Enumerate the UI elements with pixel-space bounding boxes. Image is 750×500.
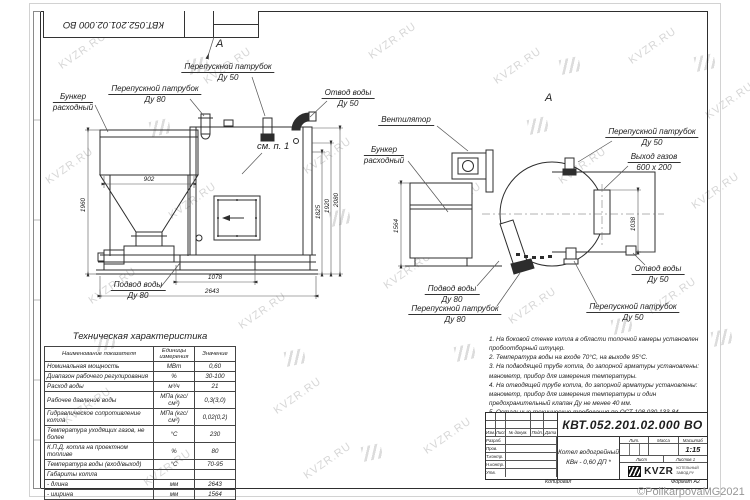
callout-side-water-outlet: Отвод воды Ду 50 xyxy=(632,264,685,285)
callout-side-water-inlet: Подвод воды Ду 80 xyxy=(425,284,480,305)
title-block-right-section: КВТ.052.201.02.000 ВО Котел водогрейный … xyxy=(558,413,707,479)
callout-line: Перепускной патрубок xyxy=(408,304,501,315)
spec-value: 1564 xyxy=(195,490,236,500)
signature-row: Разраб. xyxy=(486,437,557,445)
spec-name: Расход воды xyxy=(45,382,154,392)
callout-line: Вентилятор xyxy=(378,115,434,126)
spec-value xyxy=(195,470,236,480)
scale-label: Масштаб xyxy=(679,437,707,443)
spec-name: К.П.Д. котла на проектном топливе xyxy=(45,443,154,460)
sig-tkontr: Т.контр. xyxy=(486,453,506,460)
col-data: Дата xyxy=(544,429,557,436)
spec-name: - длина xyxy=(45,480,154,490)
callout-side-bypass-80: Перепускной патрубок Ду 80 xyxy=(408,304,501,325)
spec-value: 70-95 xyxy=(195,460,236,470)
spec-row: Габариты котла xyxy=(45,470,236,480)
view-arrow-label-a: А xyxy=(216,38,223,50)
spec-name: Диапазон рабочего регулирования xyxy=(45,372,154,382)
dim-1038: 1038 xyxy=(630,216,637,231)
callout-side-bypass-50-bottom: Перепускной патрубок Ду 50 xyxy=(586,302,679,323)
mass-value xyxy=(649,444,678,455)
note-item: 4. На отводящей трубе котла, до запорной… xyxy=(489,381,715,408)
spec-value: 30-100 xyxy=(195,372,236,382)
sig-prov: Пров. xyxy=(486,445,506,452)
col-izm: Изм. xyxy=(486,429,496,436)
callout-line: Ду 50 xyxy=(586,313,679,323)
spec-value: 80 xyxy=(195,443,236,460)
spec-row: К.П.Д. котла на проектном топливе%80 xyxy=(45,443,236,460)
spec-value: 0,02(0,2) xyxy=(195,409,236,426)
sheet-row: Лист Листов 1 xyxy=(620,456,707,463)
callout-front-water-outlet: Отвод воды Ду 50 xyxy=(322,88,375,109)
format-label: Формат А2 xyxy=(671,479,700,485)
front-view-dimension-texts: 902 1960 1825 1920 2080 1078 2643 xyxy=(80,176,340,295)
callout-front-bunker: Бункер расходный xyxy=(53,92,93,113)
spec-name: Температура уходящих газов, не более xyxy=(45,426,154,443)
callout-front-bypass-50: Перепускной патрубок Ду 50 xyxy=(181,62,274,83)
sig-nkontr: Н.контр. xyxy=(486,461,506,468)
spec-row: Расход водым³/ч21 xyxy=(45,382,236,392)
view-title-a: А xyxy=(545,92,552,104)
callout-front-water-inlet: Подвод воды Ду 80 xyxy=(111,280,166,301)
product-name: Котел водогрейный КВн - 0,60 ДП * xyxy=(558,437,620,479)
spec-name: Гидравлическое сопротивление котла xyxy=(45,409,154,426)
spec-unit: мм xyxy=(154,490,195,500)
spec-name: Температура воды (вход/выход) xyxy=(45,460,154,470)
callout-line: Ду 80 xyxy=(111,291,166,301)
note-item: 2. Температура воды на входе 70°С, на вы… xyxy=(489,353,715,362)
note-item: 3. На подводящей трубе котла, до запорно… xyxy=(489,362,715,380)
revision-row xyxy=(486,421,557,429)
dim-1078: 1078 xyxy=(208,274,223,281)
dim-902: 902 xyxy=(144,176,155,183)
dim-1564: 1564 xyxy=(393,218,400,233)
document-number: КВТ.052.201.02.000 ВО xyxy=(558,413,707,437)
callout-line: Бункер xyxy=(364,145,404,156)
sheets-label: Листов 1 xyxy=(664,456,707,462)
callout-line: расходный xyxy=(364,156,404,166)
dim-1825: 1825 xyxy=(315,204,322,219)
drawing-sheet: KVZR.RU KVZR.RU KVZR.RU KVZR.RU KVZR.RU … xyxy=(0,0,750,500)
see-note-reference: см. п. 1 xyxy=(257,141,289,152)
grid-header-row: Изм. Лист № докум. Подп. Дата xyxy=(486,429,557,437)
technical-characteristics: Техническая характеристика Наименование … xyxy=(44,331,236,500)
spec-value: 0,60 xyxy=(195,362,236,372)
margin-dividers xyxy=(33,120,40,440)
callout-line: Перепускной патрубок xyxy=(181,62,274,73)
spec-value: 230 xyxy=(195,426,236,443)
product-name-line1: Котел водогрейный xyxy=(558,448,619,458)
callout-line: Подвод воды xyxy=(111,280,166,291)
callout-side-bunker: Бункер расходный xyxy=(364,145,404,166)
callout-line: Бункер xyxy=(53,92,93,103)
spec-unit: °С xyxy=(154,426,195,443)
signature-row: Утв. xyxy=(486,469,557,477)
company-logo-cell: KVZR КОТЕЛЬНЫЙ ЗАВОД.РУ xyxy=(620,463,707,479)
spec-header-row: Наименование показателя Единицы измерени… xyxy=(45,347,236,362)
sig-utv: Утв. xyxy=(486,469,506,477)
spec-name: Рабочее давление воды xyxy=(45,392,154,409)
callout-line: Отвод воды xyxy=(322,88,375,99)
logo-subline: ЗАВОД.РУ xyxy=(676,471,699,476)
callout-line: Подвод воды xyxy=(425,284,480,295)
callout-line: 600 х 200 xyxy=(628,163,681,173)
col-list: Лист xyxy=(496,429,506,436)
col-podp: Подп. xyxy=(531,429,544,436)
signature-row: Пров. xyxy=(486,445,557,453)
front-view-boiler-outline xyxy=(96,112,318,274)
spec-header: Единицы измерения xyxy=(154,347,195,362)
spec-row: - длинамм2643 xyxy=(45,480,236,490)
callout-line: Ду 50 xyxy=(322,99,375,109)
spec-row: Диапазон рабочего регулирования%30-100 xyxy=(45,372,236,382)
spec-header: Наименование показателя xyxy=(45,347,154,362)
product-name-line2: КВн - 0,60 ДП * xyxy=(566,458,611,468)
spec-row: - ширинамм1564 xyxy=(45,490,236,500)
callout-side-fan: Вентилятор xyxy=(378,115,434,126)
callout-line: Ду 50 xyxy=(632,275,685,285)
mass-label: Масса xyxy=(649,437,678,443)
title-block: Изм. Лист № докум. Подп. Дата Разраб. Пр… xyxy=(485,412,708,480)
title-block-left-grid: Изм. Лист № докум. Подп. Дата Разраб. Пр… xyxy=(486,413,558,479)
callout-line: Ду 50 xyxy=(605,138,698,148)
spec-unit: МВт xyxy=(154,362,195,372)
spec-row: Температура воды (вход/выход)°С70-95 xyxy=(45,460,236,470)
spec-row: Номинальная мощностьМВт0,60 xyxy=(45,362,236,372)
callout-side-gas-outlet: Выход газов 600 х 200 xyxy=(628,152,681,173)
spec-name: - ширина xyxy=(45,490,154,500)
kopiroval-label: Копировал xyxy=(545,479,571,485)
spec-table: Наименование показателя Единицы измерени… xyxy=(44,346,236,500)
callout-side-bypass-50-top: Перепускной патрубок Ду 50 xyxy=(605,127,698,148)
spec-name: Номинальная мощность xyxy=(45,362,154,372)
spec-unit: % xyxy=(154,372,195,382)
callout-line: Ду 80 xyxy=(108,95,201,105)
callout-line: Перепускной патрубок xyxy=(108,84,201,95)
spec-unit: мм xyxy=(154,480,195,490)
scale-value: 1:15 xyxy=(679,444,707,455)
spec-row: Температура уходящих газов, не более°С23… xyxy=(45,426,236,443)
side-view-boiler-outline xyxy=(405,150,655,274)
callout-line: Перепускной патрубок xyxy=(605,127,698,138)
spec-unit: °С xyxy=(154,460,195,470)
spec-row: Гидравлическое сопротивление котлаМПа (к… xyxy=(45,409,236,426)
spec-unit: МПа (кгс/см²) xyxy=(154,409,195,426)
dim-2080: 2080 xyxy=(333,192,340,208)
spec-unit: МПа (кгс/см²) xyxy=(154,392,195,409)
spec-table-title: Техническая характеристика xyxy=(44,331,236,342)
kvzr-logo-text: KVZR xyxy=(644,466,673,477)
callout-line: Выход газов xyxy=(628,152,681,163)
lit-label: Лит. xyxy=(620,437,649,443)
signature-row: Н.контр. xyxy=(486,461,557,469)
revision-row xyxy=(486,413,557,421)
lit-mass-scale-header: Лит. Масса Масштаб xyxy=(620,437,707,444)
sig-razrab: Разраб. xyxy=(486,437,506,444)
spec-value: 21 xyxy=(195,382,236,392)
callout-line: Ду 80 xyxy=(408,315,501,325)
spec-name: Габариты котла xyxy=(45,470,154,480)
spec-value: 2643 xyxy=(195,480,236,490)
dim-1920: 1920 xyxy=(324,198,331,213)
kvzr-logo-icon xyxy=(628,466,641,477)
signature-row: Т.контр. xyxy=(486,453,557,461)
callout-front-bypass-80: Перепускной патрубок Ду 80 xyxy=(108,84,201,105)
spec-value: 0,3(3,0) xyxy=(195,392,236,409)
note-item: 1. На боковой стенке котла в области топ… xyxy=(489,335,715,353)
copyright-watermark: ©PolikarpovaMG2021 xyxy=(637,486,745,498)
sheet-label: Лист xyxy=(620,456,664,462)
col-dokum: № докум. xyxy=(506,429,532,436)
spec-header: Значение xyxy=(195,347,236,362)
spec-unit: % xyxy=(154,443,195,460)
callout-line: расходный xyxy=(53,103,93,113)
callout-line: Ду 50 xyxy=(181,73,274,83)
callout-line: Отвод воды xyxy=(632,264,685,275)
dim-1960: 1960 xyxy=(80,197,87,212)
spec-row: Рабочее давление водыМПа (кгс/см²)0,3(3,… xyxy=(45,392,236,409)
spec-unit: м³/ч xyxy=(154,382,195,392)
lit-mass-scale-values: 1:15 xyxy=(620,444,707,456)
spec-unit xyxy=(154,470,195,480)
callout-line: Перепускной патрубок xyxy=(586,302,679,313)
kvzr-logo-subtext: КОТЕЛЬНЫЙ ЗАВОД.РУ xyxy=(676,466,699,475)
dim-2643: 2643 xyxy=(204,288,220,295)
lit-boxes xyxy=(620,444,649,455)
